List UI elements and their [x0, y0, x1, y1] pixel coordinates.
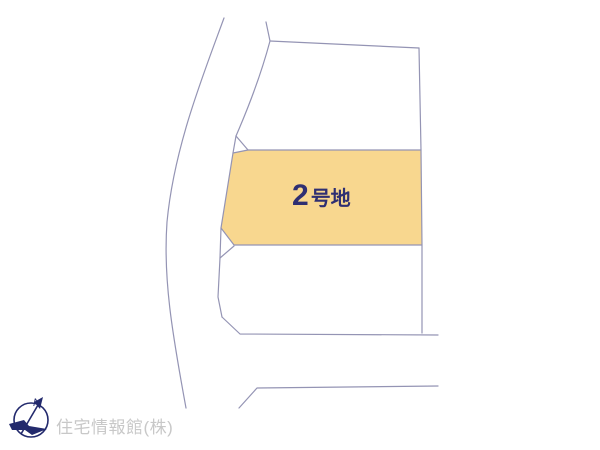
compass-north-label: N [33, 397, 41, 409]
north-plot-top-edge [270, 41, 419, 48]
company-watermark: 住宅情報館(株) [56, 413, 173, 438]
road-left-outer-line [166, 18, 224, 408]
plot-map-canvas [0, 0, 600, 450]
south-plot-bottom-edge [222, 317, 438, 335]
plot-2-label-number: 2 [292, 181, 309, 211]
boundary-tick-lower [220, 246, 234, 258]
boundary-tick-upper [236, 136, 248, 150]
plot-2-label-suffix: 号地 [311, 189, 351, 209]
plot-2-label: 2 号地 [292, 181, 351, 211]
north-compass-icon: N [0, 388, 60, 450]
bottom-road-line [239, 386, 438, 408]
plot-map: 2 号地 N 住宅情報館(株) [0, 0, 600, 450]
